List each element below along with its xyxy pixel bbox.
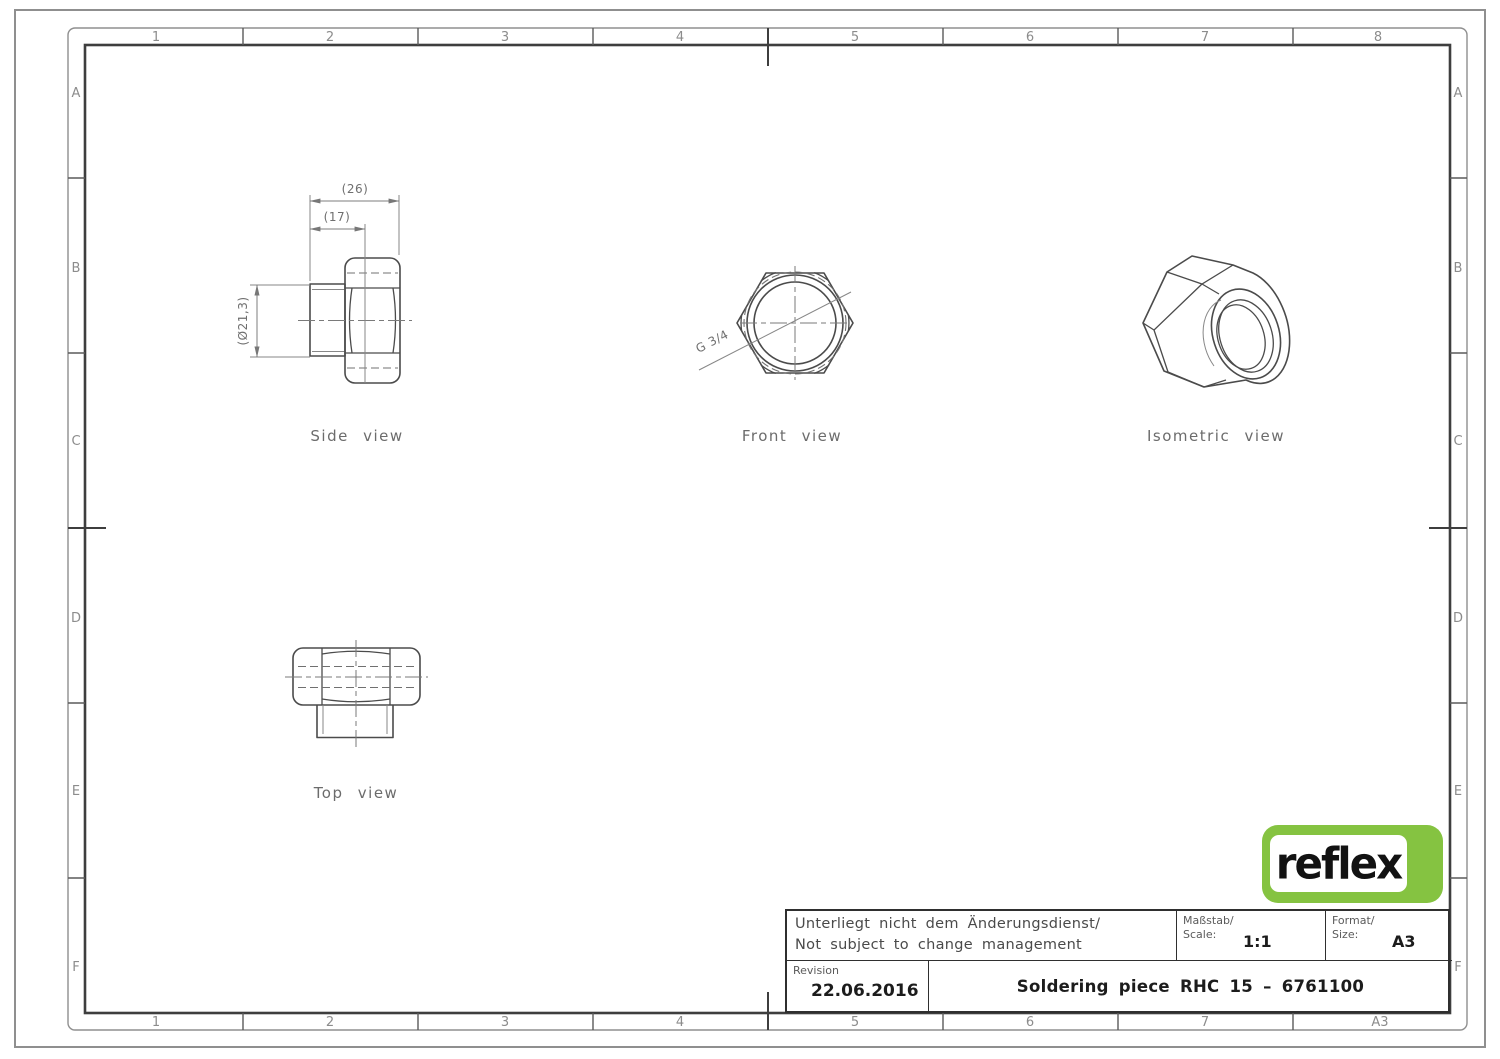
side-view: (26) (17) (Ø21,3) Side view — [236, 182, 412, 445]
row-label: A — [1454, 86, 1463, 101]
dim-dia-text: (Ø21,3) — [236, 296, 250, 345]
frame-rows-left: A B C D E F — [71, 86, 81, 975]
col-label: 7 — [1201, 1015, 1209, 1030]
row-label: D — [71, 611, 81, 626]
col-label: 4 — [676, 1015, 684, 1030]
top-view: Top view — [285, 640, 428, 802]
frame-columns-bottom: 1 2 3 4 5 6 7 A3 — [152, 1015, 1389, 1030]
revision-date: 22.06.2016 — [811, 981, 919, 1001]
row-label: E — [72, 784, 80, 799]
col-label: 5 — [851, 1015, 859, 1030]
col-label: 8 — [1374, 30, 1382, 45]
col-label: 2 — [326, 1015, 334, 1030]
reflex-logo-inner: reflex — [1270, 835, 1407, 892]
row-label: F — [1454, 960, 1461, 975]
col-label: 7 — [1201, 30, 1209, 45]
note-german: Unterliegt nicht dem Änderungsdienst/ — [795, 914, 1168, 935]
scale-label: Maßstab/ Scale: — [1183, 914, 1234, 942]
front-view: G 3/4 Front view — [693, 266, 853, 445]
col-label: 6 — [1026, 1015, 1034, 1030]
row-label: C — [1453, 434, 1462, 449]
revision-cell: Revision 22.06.2016 — [787, 960, 928, 1011]
change-management-note: Unterliegt nicht dem Änderungsdienst/ No… — [787, 911, 1176, 960]
drawing-title: Soldering piece RHC 15 – 6761100 — [1017, 977, 1364, 996]
col-label: 6 — [1026, 30, 1034, 45]
col-label: 2 — [326, 30, 334, 45]
thread-callout: G 3/4 — [693, 327, 730, 356]
dim-17: (17) — [310, 210, 365, 229]
col-label: 3 — [501, 1015, 509, 1030]
isometric-view: Isometric view — [1143, 256, 1292, 445]
drawing-sheet: 1 2 3 4 5 6 7 8 1 2 3 4 5 6 7 A3 A B C D… — [0, 0, 1500, 1059]
frame-band-border — [68, 28, 1467, 1030]
top-view-centrelines — [285, 640, 428, 748]
col-label: 5 — [851, 30, 859, 45]
col-label: A3 — [1371, 1015, 1388, 1030]
top-view-label: Top view — [313, 784, 399, 802]
row-label: A — [72, 86, 81, 101]
col-label: 4 — [676, 30, 684, 45]
frame-ticks — [68, 28, 1467, 1030]
dim-26-text: (26) — [342, 182, 369, 196]
front-view-centrelines — [740, 266, 850, 380]
frame-rows-right: A B C D E F — [1453, 86, 1463, 975]
row-label: B — [1454, 261, 1463, 276]
revision-label: Revision — [793, 964, 839, 978]
drawing-title-cell: Soldering piece RHC 15 – 6761100 — [928, 960, 1452, 1011]
format-label: Format/ Size: — [1332, 914, 1374, 942]
dim-26: (26) — [310, 182, 399, 281]
format-cell: Format/ Size: A3 — [1325, 911, 1452, 960]
scale-value: 1:1 — [1243, 932, 1272, 951]
iso-bore-outer — [1210, 293, 1282, 379]
format-value: A3 — [1392, 932, 1416, 951]
side-view-label: Side view — [310, 427, 403, 445]
title-block: Unterliegt nicht dem Änderungsdienst/ No… — [785, 909, 1450, 1013]
note-english: Not subject to change management — [795, 935, 1168, 956]
reflex-logo: reflex — [1262, 825, 1443, 903]
isometric-view-label: Isometric view — [1147, 427, 1285, 445]
top-view-cylinder — [317, 705, 393, 738]
col-label: 1 — [152, 1015, 160, 1030]
col-label: 1 — [152, 30, 160, 45]
scale-cell: Maßstab/ Scale: 1:1 — [1176, 911, 1325, 960]
front-view-label: Front view — [742, 427, 842, 445]
iso-bore-inner — [1209, 299, 1273, 376]
row-label: B — [72, 261, 81, 276]
row-label: E — [1454, 784, 1462, 799]
dim-17-text: (17) — [324, 210, 351, 224]
col-label: 3 — [501, 30, 509, 45]
row-label: F — [72, 960, 79, 975]
row-label: D — [1453, 611, 1463, 626]
reflex-logo-text: reflex — [1276, 842, 1401, 886]
drawing-area-border — [85, 45, 1450, 1013]
row-label: C — [71, 434, 80, 449]
